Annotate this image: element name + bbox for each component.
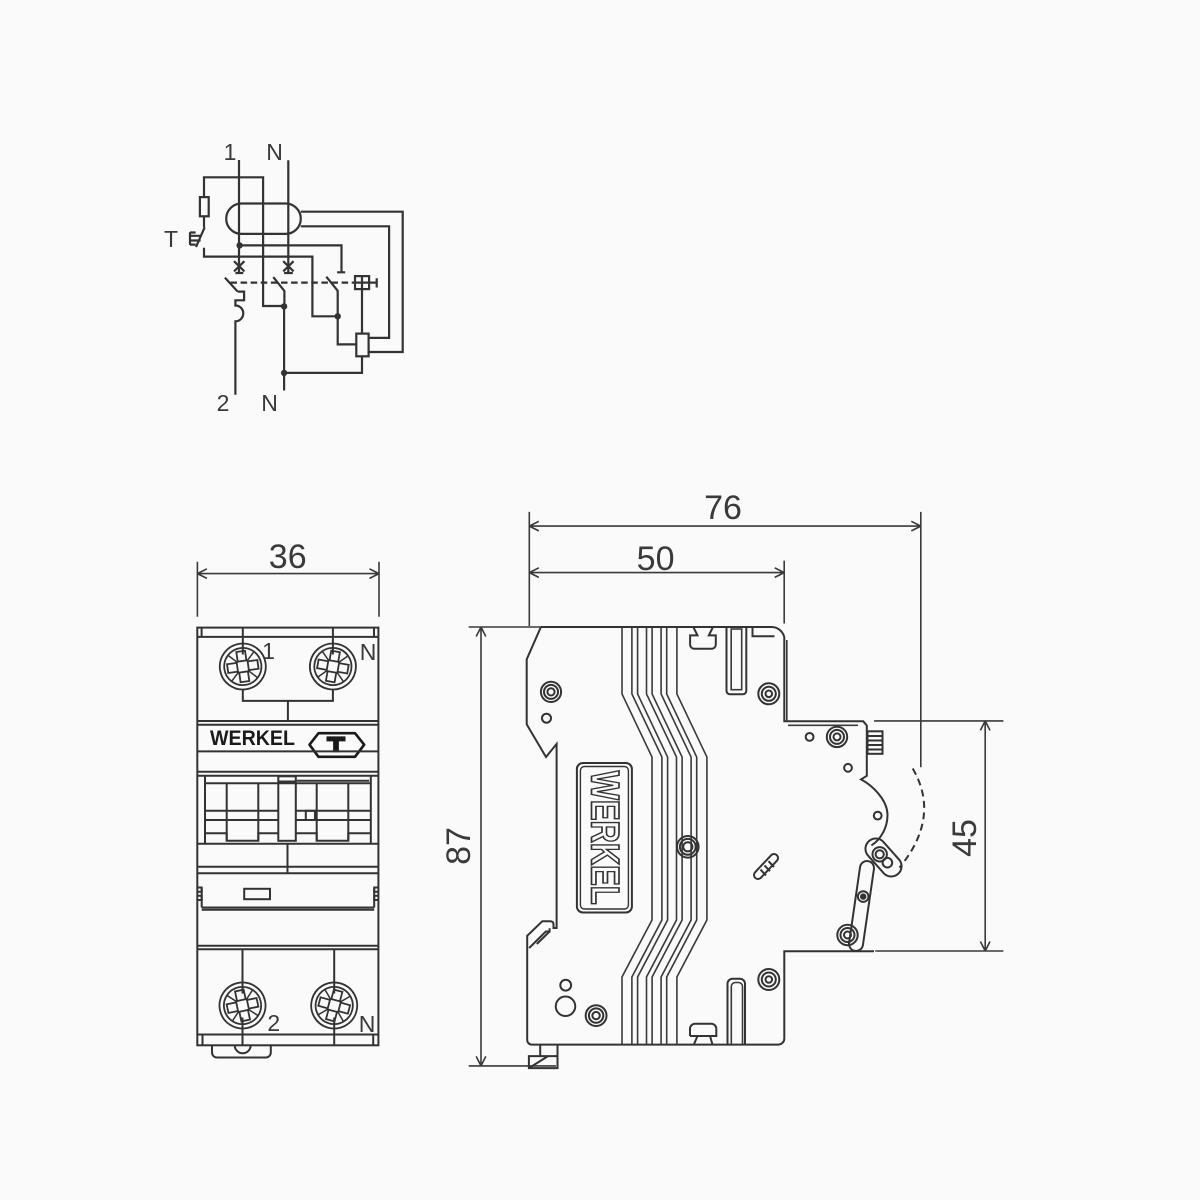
svg-text:2: 2	[217, 390, 230, 416]
svg-text:N: N	[261, 390, 278, 416]
svg-text:WERKEL: WERKEL	[582, 771, 626, 905]
svg-text:45: 45	[946, 819, 984, 857]
svg-text:1: 1	[224, 139, 237, 165]
svg-text:N: N	[359, 1011, 376, 1037]
svg-text:WERKEL: WERKEL	[210, 727, 295, 750]
svg-text:N: N	[266, 139, 283, 165]
svg-text:N: N	[360, 639, 377, 665]
svg-text:1: 1	[262, 638, 275, 664]
svg-text:87: 87	[440, 827, 478, 865]
svg-text:76: 76	[704, 489, 742, 527]
svg-text:T: T	[164, 226, 178, 252]
svg-text:2: 2	[267, 1010, 280, 1036]
svg-text:36: 36	[269, 538, 307, 576]
